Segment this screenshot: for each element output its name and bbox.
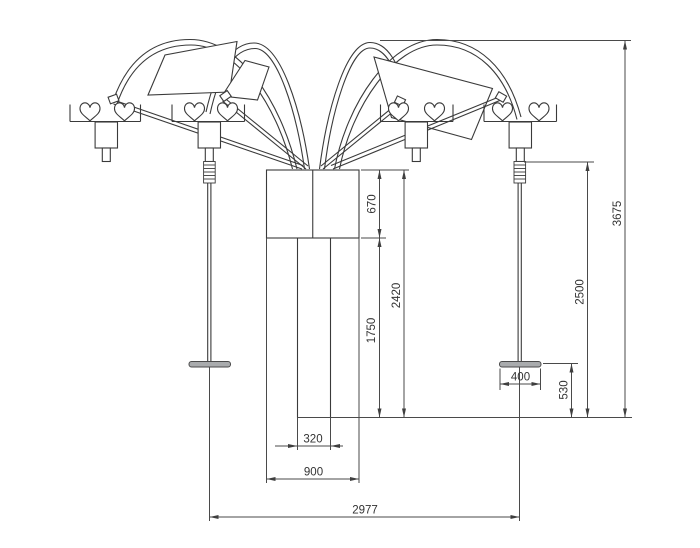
dim-label-column-width: 320 [303,434,322,446]
central-column [267,170,360,418]
dim-post-height: 1750 [366,238,382,418]
swing-stem [516,148,524,162]
heart-icon [185,103,205,121]
swing-hanger [405,122,427,148]
panel-left [148,42,237,96]
swing-hanger [95,122,117,148]
dim-swing-span: 2977 [210,505,520,520]
dim-column-height: 2420 [391,170,406,418]
technical-drawing-page: 670 1750 2420 2500 3675 530 [0,0,700,548]
heart-icon [80,103,100,121]
dim-total-height: 3675 [612,41,627,418]
dim-seat-clearance: 530 [559,364,574,418]
swing-far-left [70,103,141,162]
swing-far-right [484,103,557,367]
dim-seat-width: 400 [500,372,541,387]
dim-label-column-height: 2420 [391,283,403,309]
heart-icon [493,103,513,121]
swing-seat [189,362,231,368]
swing-hanger [198,122,220,148]
swing-seat [500,362,542,368]
swing-structure-drawing: 670 1750 2420 2500 3675 530 [0,0,700,548]
arched-arms [108,40,521,170]
dim-hub-height: 670 [367,170,382,238]
dim-label-swing-span: 2977 [352,505,378,517]
dim-label-total-height: 3675 [612,201,624,227]
dim-label-post-height: 1750 [366,318,378,344]
rope-coil [514,162,526,184]
heart-icon [115,103,135,121]
swing-hanger [509,122,531,148]
panel-right [374,57,493,140]
dim-rope-drop-height: 2500 [575,162,590,418]
swing-stem [205,148,213,162]
dim-label-seat-clearance: 530 [559,380,571,399]
swing-stem [412,148,420,162]
swing-left [172,103,245,367]
heart-icon [529,103,549,121]
dim-column-width: 320 [275,434,343,449]
dim-label-rope-drop-height: 2500 [575,279,587,305]
dim-label-hub-height: 670 [367,194,379,213]
dim-label-seat-width: 400 [511,372,530,384]
dim-label-hub-width: 900 [304,467,323,479]
dim-hub-width: 900 [267,467,360,482]
rope-coil [204,162,216,184]
swing-stem [102,148,110,162]
